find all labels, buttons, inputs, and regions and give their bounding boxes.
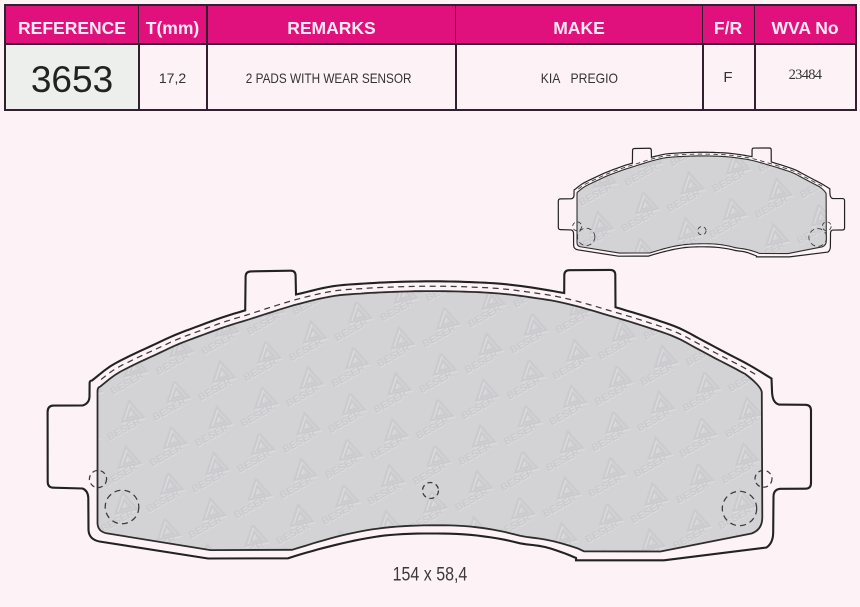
svg-text:154 x 58,4: 154 x 58,4	[393, 563, 468, 585]
